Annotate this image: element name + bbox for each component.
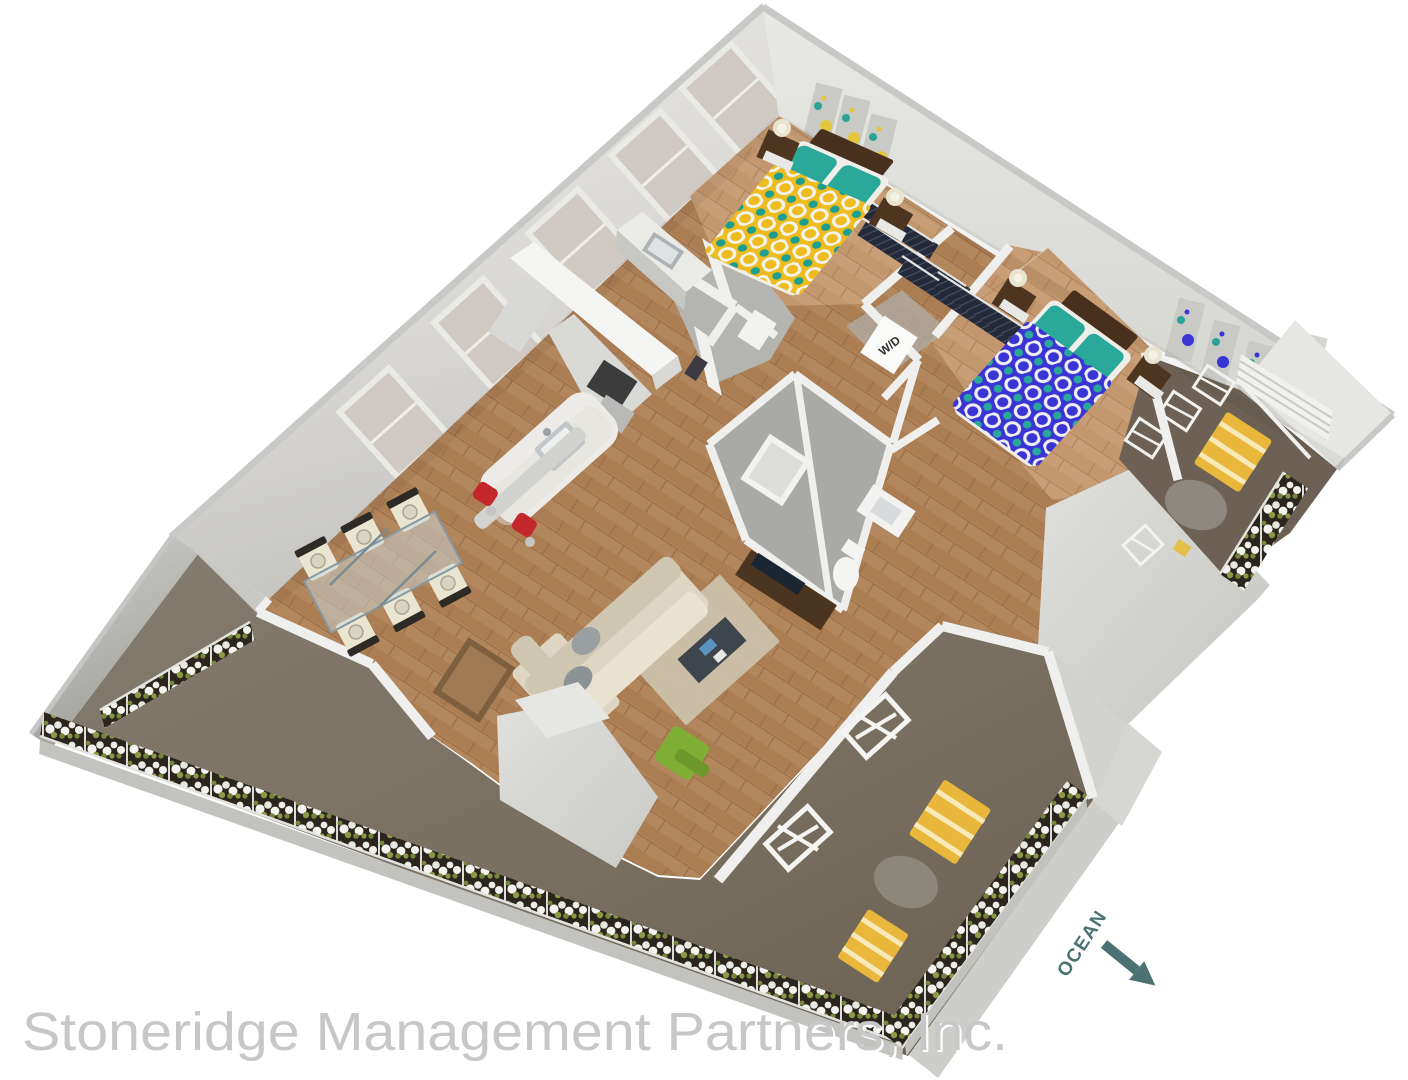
svg-text:OCEAN: OCEAN: [1053, 907, 1111, 981]
svg-text:Stoneridge Management Partners: Stoneridge Management Partners, Inc.: [22, 1002, 1008, 1062]
